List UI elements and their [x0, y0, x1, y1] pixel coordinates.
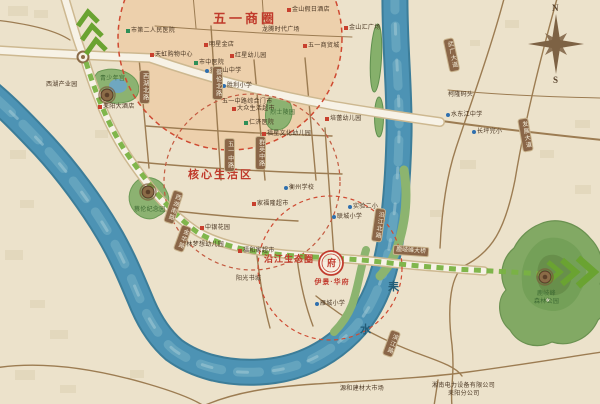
poi-marker-icon — [194, 61, 198, 65]
poi-marker-icon — [204, 43, 208, 47]
compass-north-label: N — [552, 3, 559, 13]
road-name-plaque: 蔡伦北路 — [212, 66, 223, 100]
poi-marker-icon — [472, 130, 476, 134]
road-name-plaque: 武广大道 — [443, 37, 460, 72]
poi-marker-icon — [232, 107, 236, 111]
poi-label: 福星文化幼儿园 — [262, 131, 311, 137]
poi-label: 雁城小学 — [315, 301, 345, 307]
poi-label: 五一中路综合门市 — [222, 99, 272, 105]
project-seal-character: 府 — [323, 257, 340, 270]
poi-label: 培蕾幼儿园 — [325, 116, 362, 122]
road-name-plaque: 金华路 — [173, 224, 192, 253]
poi-label: 胜利小学 — [222, 83, 252, 89]
poi-label: 福和家超市 — [238, 248, 275, 254]
poi-marker-icon — [303, 44, 307, 48]
road-name-plaque: 五一中路 — [224, 138, 235, 172]
poi-marker-icon — [126, 29, 130, 33]
location-map: 五一商圈 核心生活区 沿江生态圈 府 伊景·华府 耒 水 N S 鹿岐峰大桥 金… — [0, 0, 600, 404]
label-layer: 五一商圈 核心生活区 沿江生态圈 府 伊景·华府 耒 水 N S 鹿岐峰大桥 金… — [0, 0, 600, 404]
poi-label: 仁济医院 — [244, 120, 274, 126]
road-name-plaque: 西湖北路 — [139, 70, 150, 104]
road-name-plaque: 发展大道 — [517, 117, 533, 152]
poi-label: 家福隆超市 — [252, 201, 289, 207]
poi-marker-icon — [284, 186, 288, 190]
poi-marker-icon — [205, 69, 209, 73]
poi-label: 蔡伦纪念园 — [134, 207, 166, 213]
poi-label: 联城小学 — [332, 214, 362, 220]
poi-label: 狮子山中学 — [205, 68, 242, 74]
poi-marker-icon — [252, 202, 256, 206]
poi-label: 青少年宫 — [100, 76, 125, 82]
poi-label: 西湖产业园 — [46, 82, 78, 88]
project-name-label: 伊景·华府 — [304, 277, 360, 287]
road-name-plaque: 群英中路 — [255, 136, 266, 170]
poi-marker-icon — [238, 249, 242, 253]
poi-label: 金山汇广场 — [344, 25, 381, 31]
poi-label: 天虹购物中心 — [150, 52, 193, 58]
poi-label: 市第二人民医院 — [126, 28, 175, 34]
poi-marker-icon — [200, 226, 204, 230]
poi-marker-icon — [244, 121, 248, 125]
poi-label: 金山假日酒店 — [287, 7, 330, 13]
poi-label: 森林公园 — [534, 299, 559, 305]
poi-label: 五一商贸城 — [303, 43, 340, 49]
poi-label: 龙腾时代广场 — [262, 27, 300, 33]
poi-label: 烈士陵园 — [270, 110, 295, 116]
poi-label: 阳光书城 — [236, 276, 261, 282]
zone-label-core-living: 核心生活区 — [188, 166, 253, 182]
poi-marker-icon — [287, 8, 291, 12]
road-name-plaque: 西湖南路 — [163, 189, 184, 225]
bridge-name-plaque: 鹿岐峰大桥 — [393, 245, 430, 257]
poi-label: 红星幼儿园 — [230, 53, 267, 59]
poi-marker-icon — [98, 105, 102, 109]
poi-label: 实验二小 — [348, 204, 378, 210]
poi-label: 源和建材大市场 — [340, 386, 384, 392]
poi-marker-icon — [446, 113, 450, 117]
poi-label: 明星金店 — [204, 42, 234, 48]
poi-marker-icon — [230, 54, 234, 58]
zone-label-business-district: 五一商圈 — [213, 8, 277, 27]
poi-label: 衡州学校 — [284, 185, 314, 191]
river-name-char-1: 耒 — [388, 278, 399, 294]
compass-south-label: S — [553, 75, 558, 85]
poi-marker-icon — [344, 26, 348, 30]
road-name-plaque: 沿江北路 — [371, 207, 386, 242]
poi-marker-icon — [348, 205, 352, 209]
poi-label: 耒阳分公司 — [448, 391, 480, 397]
poi-label: 鹿岐峰 — [537, 291, 556, 297]
poi-label: 中银花园 — [200, 225, 230, 231]
river-name-char-2: 水 — [360, 321, 371, 337]
poi-label: 大众生活超市 — [232, 106, 275, 112]
poi-marker-icon — [150, 53, 154, 57]
poi-marker-icon — [325, 117, 329, 121]
poi-marker-icon — [315, 302, 319, 306]
road-name-plaque: 滨江路 — [382, 329, 401, 358]
poi-label: 湘南电力设备有限公司 — [432, 383, 495, 389]
poi-label: 水东江中学 — [446, 112, 483, 118]
poi-label: 耒阳大酒店 — [98, 104, 135, 110]
poi-marker-icon — [332, 215, 336, 219]
poi-marker-icon — [222, 84, 226, 88]
poi-label: 长坪完小 — [472, 129, 502, 135]
poi-label: 柯隆码头 — [448, 92, 473, 98]
